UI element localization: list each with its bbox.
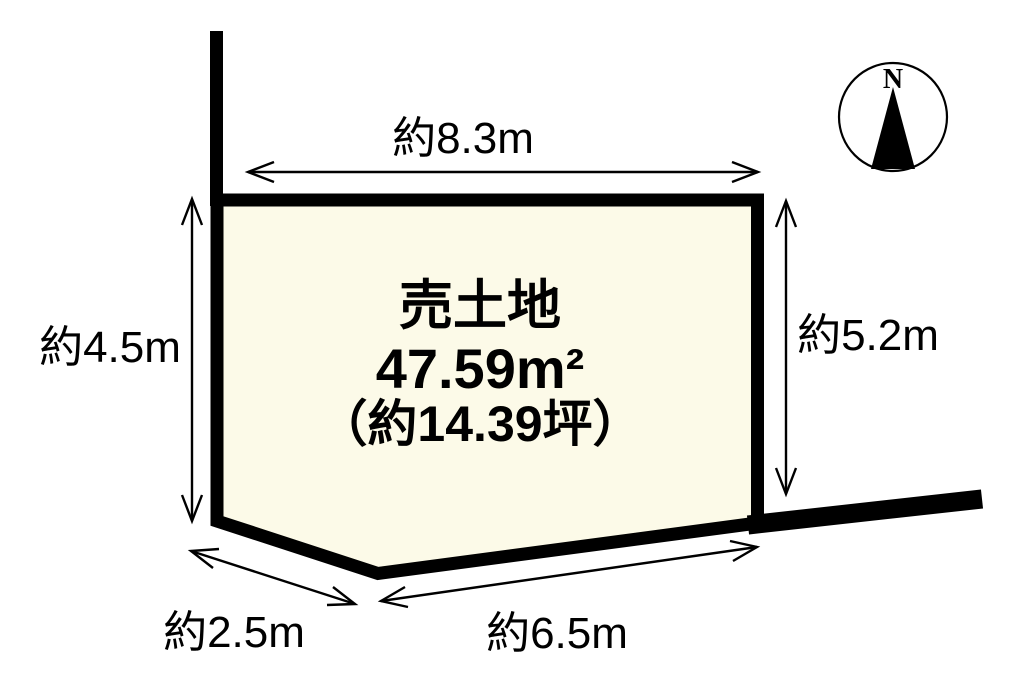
parcel-area-m2: 47.59m² xyxy=(376,337,585,400)
dimension-label-left: 約4.5m xyxy=(39,323,181,372)
dimension-label-bottom-left: 約2.5m xyxy=(163,608,305,657)
dimension-arrow-top xyxy=(248,162,758,182)
dimension-arrow-left xyxy=(182,199,202,521)
land-plot-diagram: 約8.3m 約4.5m 約5.2m 約2.5m 約6.5m 売土地 47.59m… xyxy=(0,0,1029,680)
dimension-arrow-right xyxy=(776,201,796,494)
compass: N xyxy=(839,63,947,171)
dimension-label-bottom: 約6.5m xyxy=(486,609,628,658)
dimension-label-right: 約5.2m xyxy=(797,311,939,360)
road-boundary-diagonal xyxy=(748,499,982,525)
parcel-area-tsubo: （約14.39坪） xyxy=(317,396,642,452)
parcel-title: 売土地 xyxy=(399,276,561,336)
dimension-label-top: 約8.3m xyxy=(392,114,534,163)
diagram-canvas: 約8.3m 約4.5m 約5.2m 約2.5m 約6.5m 売土地 47.59m… xyxy=(0,0,1029,680)
